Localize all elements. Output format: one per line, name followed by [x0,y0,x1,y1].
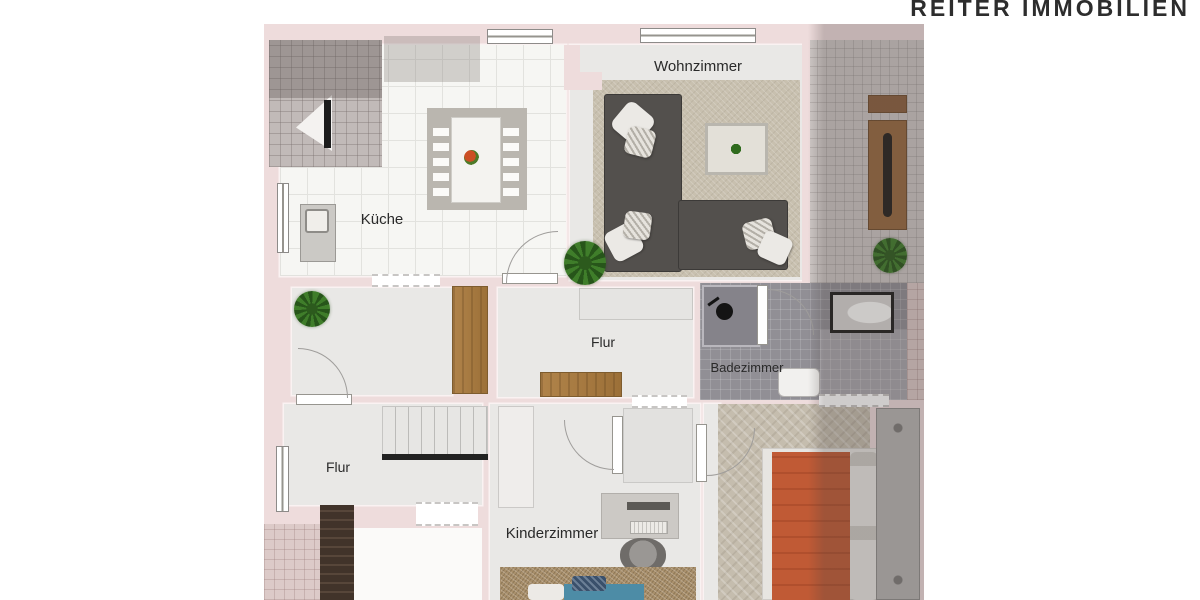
room-label-flur-unten: Flur [308,459,368,475]
wall-kitchen-living-b [564,72,602,90]
wall-living-balcony [802,40,810,283]
desk-shelf [627,502,670,510]
fruit-bowl [464,150,479,165]
wall-kitchen-living-a [564,45,580,73]
agency-logo: REITER IMMOBILIEN [910,0,1190,22]
keyboard [630,521,668,534]
floorplan: Wohnzimmer Küche Flur Badezimmer Flur Ki… [264,0,936,600]
room-label-wohnzimmer: Wohnzimmer [648,58,748,75]
kitchen-sink-basin [305,209,329,233]
plant-livingroom [564,241,606,285]
entrance-door-slab [324,100,331,148]
sideboard-wood [540,372,622,397]
window-hall-left [276,446,289,512]
door-leaf-bathroom [757,285,768,345]
exterior-path [354,528,482,600]
opening-bedroom-top [819,394,889,407]
builtin-niche [623,408,693,483]
opening-hall-childroom [632,395,687,408]
lounger-cushion [883,133,892,217]
plant-balcony [873,238,907,273]
shower-head-icon [716,303,733,320]
window-kitchen-left [277,183,289,253]
sofa-cushion [622,210,652,240]
entry-steps [320,505,354,600]
dining-chairs-right [503,124,519,196]
window-kitchen-top [487,29,553,44]
window-livingroom-top [640,28,756,43]
door-leaf-bedroom [696,424,707,482]
room-label-flur-mitte: Flur [573,334,633,350]
wardrobe-bedroom [876,408,920,600]
room-label-badezimmer: Badezimmer [701,360,793,375]
double-bed-duvet [772,452,850,600]
wardrobe-white [579,288,693,320]
plant-hall [294,291,330,327]
bathroom-floor-light [820,330,907,400]
double-bed-pillows [850,452,878,600]
floorplan-page: REITER IMMOBILIEN [0,0,1200,600]
lounger-head [868,95,907,113]
room-label-kinderzimmer: Kinderzimmer [504,525,600,542]
entrance-door-band [416,502,478,526]
opening-kitchen-hall [372,274,440,287]
wardrobe-wood [452,286,488,394]
stairs [382,406,488,455]
stairs-rail [382,454,488,460]
closet-white [498,406,534,508]
child-bed-pillow [528,584,564,600]
side-strip-tiles [907,283,924,400]
room-label-kueche: Küche [352,211,412,228]
coffee-table-plant [730,143,742,155]
toilet [830,292,894,333]
child-bed-cushion [572,576,606,591]
dining-chairs-left [433,124,449,196]
